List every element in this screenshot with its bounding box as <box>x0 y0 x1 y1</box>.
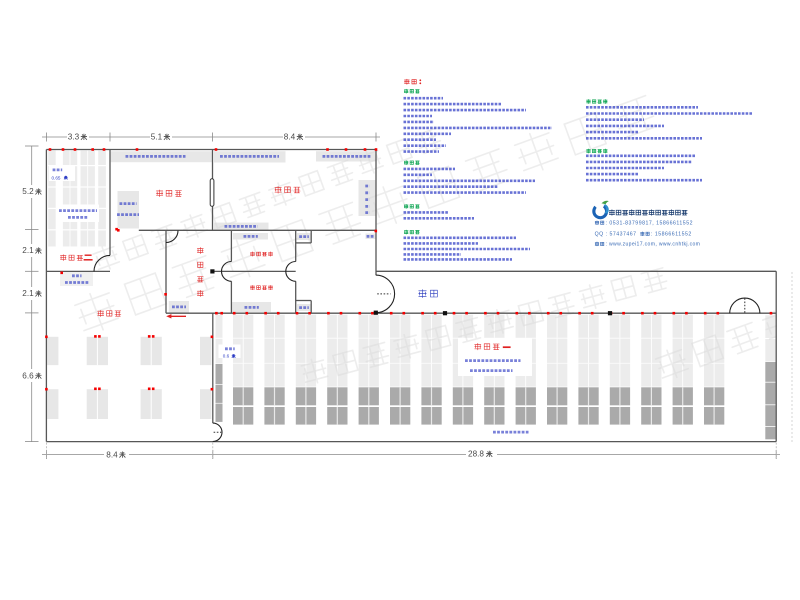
svg-text:: 0531-83799817, 15866611552: : 0531-83799817, 15866611552 <box>606 220 693 226</box>
svg-text:3.3: 3.3 <box>68 133 80 142</box>
svg-text:: 15866611552: : 15866611552 <box>651 232 692 238</box>
svg-text:: www.zupei17.com, www.cnhtkj: : www.zupei17.com, www.cnhtkj.com <box>606 242 701 248</box>
svg-text:2.1: 2.1 <box>22 289 34 298</box>
svg-text:2.1: 2.1 <box>22 246 34 255</box>
svg-text:8.4: 8.4 <box>106 450 118 459</box>
svg-text:8.4: 8.4 <box>284 133 296 142</box>
svg-text:0.6: 0.6 <box>223 354 230 359</box>
svg-text:6.6: 6.6 <box>22 371 34 380</box>
svg-text:5.2: 5.2 <box>22 187 34 196</box>
svg-text:28.8: 28.8 <box>468 450 484 459</box>
svg-text:0.65: 0.65 <box>52 175 61 180</box>
svg-text:QQ : 57437467: QQ : 57437467 <box>595 232 637 238</box>
svg-text:5.1: 5.1 <box>151 133 163 142</box>
